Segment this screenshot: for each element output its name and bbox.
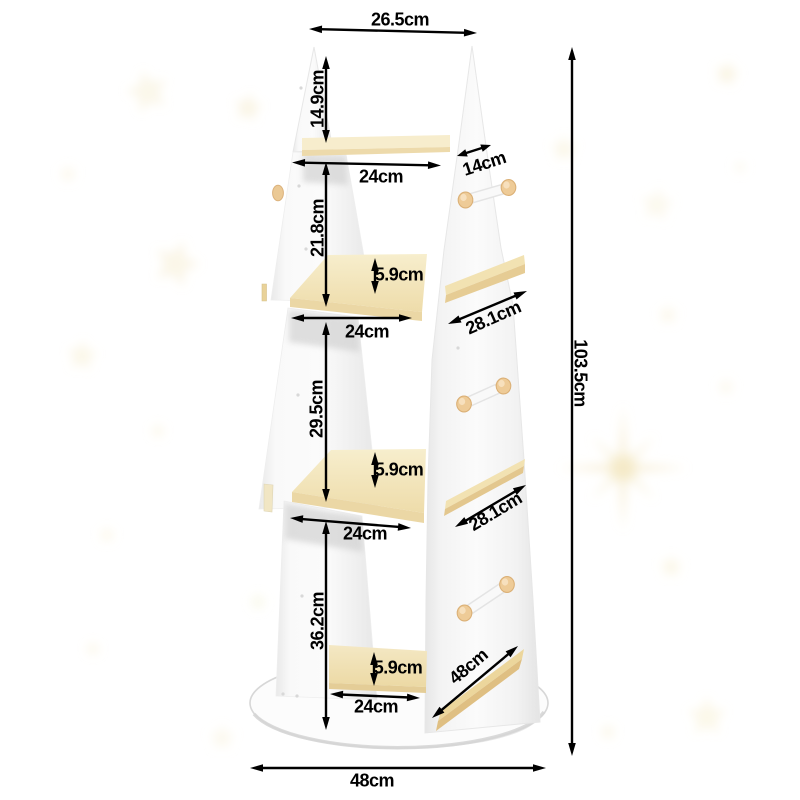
svg-text:24cm: 24cm	[359, 167, 403, 187]
svg-text:103.5cm: 103.5cm	[571, 339, 591, 407]
svg-text:5.9cm: 5.9cm	[374, 658, 423, 678]
svg-text:5.9cm: 5.9cm	[375, 265, 424, 285]
svg-text:24cm: 24cm	[345, 322, 389, 342]
svg-text:14.9cm: 14.9cm	[308, 70, 328, 128]
svg-text:29.5cm: 29.5cm	[307, 380, 327, 438]
svg-text:26.5cm: 26.5cm	[371, 10, 429, 30]
svg-text:48cm: 48cm	[350, 771, 394, 791]
svg-text:24cm: 24cm	[354, 697, 398, 717]
svg-text:5.9cm: 5.9cm	[375, 460, 424, 480]
svg-text:36.2cm: 36.2cm	[308, 592, 328, 650]
svg-text:21.8cm: 21.8cm	[308, 199, 328, 257]
svg-text:24cm: 24cm	[343, 524, 387, 544]
